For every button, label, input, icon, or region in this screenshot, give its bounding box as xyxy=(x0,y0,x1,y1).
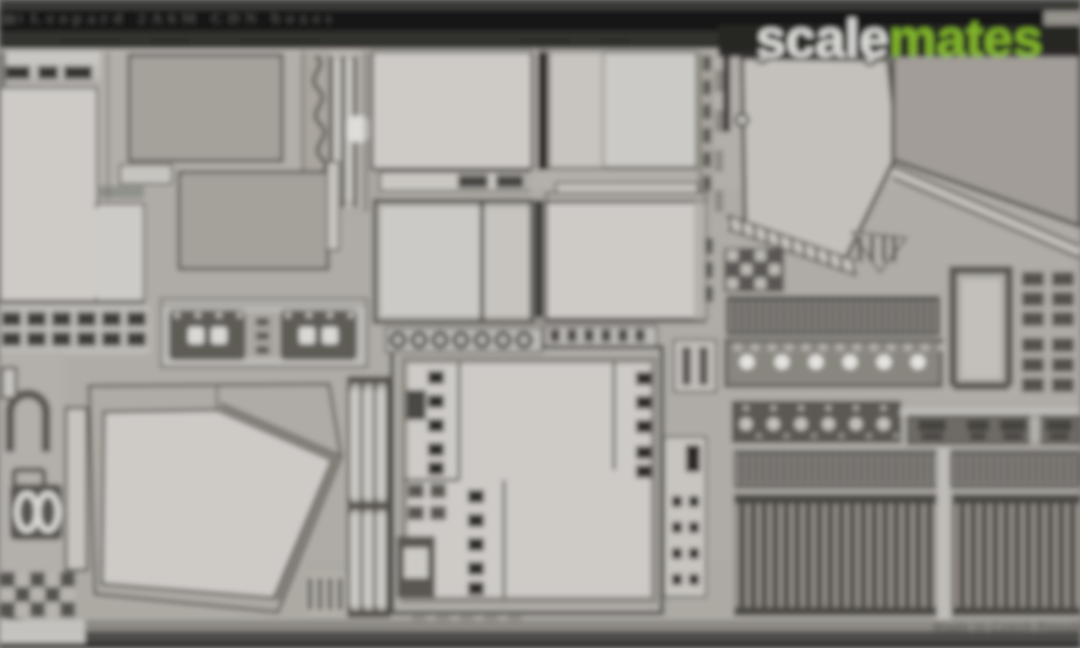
svg-text:33: 33 xyxy=(2,12,16,27)
svg-text:Leopard 2A6M CDN boxes: Leopard 2A6M CDN boxes xyxy=(31,11,338,27)
